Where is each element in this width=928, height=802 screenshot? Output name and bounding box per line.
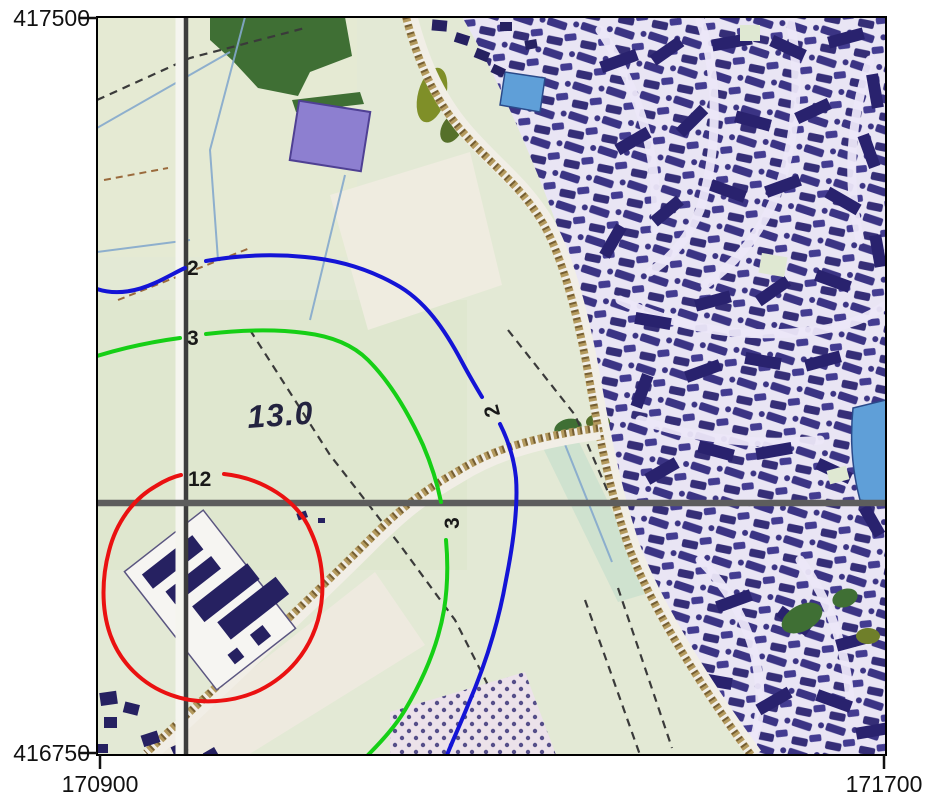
map-content: 2 3 12 2 3 13.0: [97, 17, 889, 760]
canal: [852, 400, 886, 505]
map-figure: 2 3 12 2 3 13.0 417500 416750 170900 171…: [0, 0, 928, 802]
axis-label-x-left: 170900: [62, 771, 139, 797]
axis-label-y-bottom: 416750: [13, 740, 90, 766]
pond: [500, 72, 545, 112]
contour-label-3: 3: [187, 327, 199, 350]
contour-label-2: 2: [187, 257, 199, 280]
axis-label-y-top: 417500: [13, 5, 90, 31]
map-canvas: 2 3 12 2 3 13.0 417500 416750 170900 171…: [0, 0, 928, 802]
spot-elevation-label: 13.0: [246, 394, 315, 435]
axis-label-x-right: 171700: [846, 771, 923, 797]
purple-parcel: [290, 101, 370, 172]
contour-label-12: 12: [188, 468, 211, 491]
contour-label-3-rotated: 3: [441, 517, 464, 529]
